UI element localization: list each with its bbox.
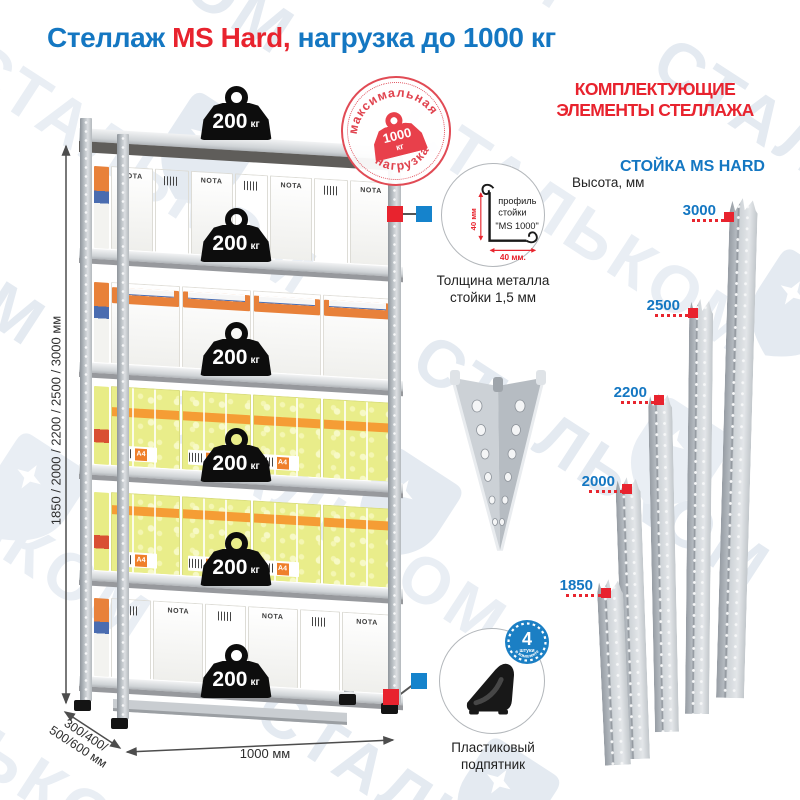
leader-marker (622, 484, 632, 494)
profile-dim-horizontal: 40 мм. (500, 253, 526, 262)
leader-marker (601, 588, 611, 598)
rack-post-back-left (80, 118, 92, 701)
box (94, 492, 109, 571)
box (323, 505, 392, 588)
leader-dotted-line (692, 219, 724, 222)
load-value: 200 (212, 668, 247, 692)
load-unit: кг (250, 119, 259, 130)
box-size-label: A4 (277, 562, 289, 575)
marker-blue (411, 673, 427, 689)
thickness-line-2: стойки 1,5 мм (450, 290, 536, 305)
profile-label-2: стойки (498, 207, 526, 217)
box (94, 166, 109, 249)
post-3000 (716, 198, 758, 699)
box (94, 282, 109, 363)
parts-heading: КОМПЛЕКТУЮЩИЕЭЛЕМЕНТЫ СТЕЛЛАЖА (530, 79, 780, 121)
badge-value: 4 (522, 629, 532, 649)
leader-dotted-line (655, 314, 688, 317)
box: NOTA (270, 175, 312, 260)
parts-heading-line-2: ЭЛЕМЕНТЫ СТЕЛЛАЖА (556, 100, 753, 120)
box (314, 178, 348, 263)
shelf-load-weight: 200кг (199, 322, 273, 376)
box: NOTA (153, 601, 203, 683)
post-2200 (648, 393, 679, 732)
height-options-label: 1850 / 2000 / 2200 / 2500 / 3000 мм (49, 291, 64, 551)
profile-label-3: "MS 1000" (495, 221, 538, 231)
height-units-label: Высота, мм (572, 175, 644, 190)
shield-watermark-icon (493, 0, 620, 9)
post-height-label: 2500 (640, 297, 680, 314)
shelf-load-weight: 200кг (199, 428, 273, 482)
parts-heading-line-1: КОМПЛЕКТУЮЩИЕ (575, 79, 735, 99)
post-2500 (685, 299, 713, 714)
load-value: 200 (212, 452, 247, 476)
box-brand-label: NOTA (249, 612, 297, 622)
box-size-label: A4 (135, 448, 147, 461)
corner-post-image (450, 370, 546, 555)
post-height-label: 3000 (676, 202, 716, 219)
thickness-label: Толщина металластойки 1,5 мм (430, 272, 556, 306)
stamp-unit: кг (395, 142, 405, 152)
profile-detail-callout: 40 мм 40 мм. профиль стойки "MS 1000" (441, 163, 545, 267)
leader-marker (654, 395, 664, 405)
profile-label-1: профиль (498, 196, 536, 206)
box (155, 169, 189, 254)
barcode-icon (312, 617, 327, 627)
shelf-load-weight: 200кг (199, 644, 273, 698)
box: NOTA (342, 612, 392, 694)
box-brand-label: NOTA (343, 618, 391, 628)
leader-marker (724, 212, 734, 222)
rack-foot (339, 694, 356, 705)
leader-dotted-line (621, 401, 654, 404)
title-part-2: MS Hard, (172, 22, 290, 53)
load-unit: кг (250, 355, 259, 366)
box (94, 386, 109, 465)
width-label: 1000 мм (210, 746, 320, 761)
title-part-1: Стеллаж (47, 22, 172, 53)
post-height-label: 1850 (553, 577, 593, 594)
barcode-icon (244, 181, 259, 191)
post-subheading: СТОЙКА MS HARD (590, 158, 795, 176)
barcode-icon (218, 611, 233, 621)
load-value: 200 (212, 346, 247, 370)
rack-foot (74, 700, 91, 711)
leader-dotted-line (566, 594, 601, 597)
barcode-icon (164, 176, 179, 186)
load-unit: кг (250, 241, 259, 252)
barcode-icon (324, 186, 339, 196)
leader-dotted-line (589, 490, 623, 493)
box-brand-label: NOTA (271, 182, 311, 191)
post-height-label: 2200 (607, 384, 647, 401)
shelf-load-weight: 200кг (199, 532, 273, 586)
marker-blue (416, 206, 432, 222)
page-title: Стеллаж MS Hard, нагрузка до 1000 кг (47, 22, 556, 54)
box (323, 295, 392, 380)
box (94, 598, 109, 677)
load-unit: кг (250, 677, 259, 688)
box-brand-label: NOTA (192, 177, 232, 186)
title-part-3: нагрузка до 1000 кг (290, 22, 556, 53)
marker-red (387, 206, 403, 222)
load-value: 200 (212, 110, 247, 134)
marker-red (383, 689, 399, 705)
box-size-label: A4 (135, 554, 147, 567)
rack-post-front-right (388, 141, 401, 704)
foot-label: Пластиковыйподпятник (430, 739, 556, 773)
box-brand-label: NOTA (154, 607, 202, 617)
foot-line-1: Пластиковый (451, 740, 535, 755)
box (323, 399, 392, 482)
box-size-label: A4 (277, 456, 289, 469)
rack-post-front-left (117, 134, 129, 719)
shelf-load-weight: 200кг (199, 86, 273, 140)
quantity-badge: 4 штуки в комплекте (504, 619, 550, 665)
post-height-label: 2000 (575, 473, 615, 490)
profile-dim-vertical: 40 мм (469, 208, 478, 231)
load-value: 200 (212, 556, 247, 580)
load-unit: кг (250, 565, 259, 576)
shelf-load-weight: 200кг (199, 208, 273, 262)
leader-marker (688, 308, 698, 318)
infographic-page: СТАЛЬКОМ СТАЛЬКОМ СТАЛЬКОМ СТАЛЬКОМ СТАЛ… (0, 0, 800, 800)
load-value: 200 (212, 232, 247, 256)
load-unit: кг (250, 461, 259, 472)
foot-line-2: подпятник (461, 757, 525, 772)
thickness-line-1: Толщина металла (437, 273, 550, 288)
depth-options-label: 300/400/500/600 мм (34, 703, 130, 779)
rack-foot (111, 718, 128, 729)
box (300, 609, 340, 690)
